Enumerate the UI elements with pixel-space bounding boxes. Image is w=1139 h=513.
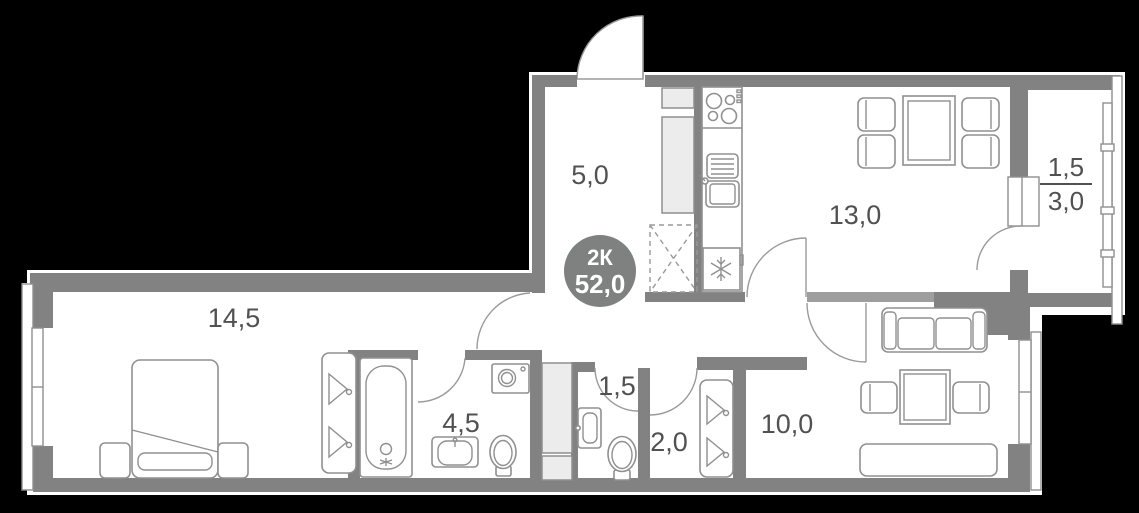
bathtub-icon	[360, 358, 412, 477]
bed-icon	[132, 360, 218, 478]
kitchen-living-area-label: 13,0	[829, 200, 882, 230]
washing-machine-icon	[492, 364, 529, 393]
vanity-sink-icon	[432, 437, 478, 467]
room-table-icon	[900, 370, 950, 424]
floor-plan: 5,0 13,0 14,5 4,5 1,5 2,0 10,0 1,5 3,0 2…	[0, 0, 1139, 513]
bathroom-area-label: 4,5	[442, 408, 480, 438]
bedroom-wardrobe-icon	[322, 353, 356, 473]
floor-plan-canvas: 5,0 13,0 14,5 4,5 1,5 2,0 10,0 1,5 3,0 2…	[0, 0, 1139, 513]
second-room-area-label: 10,0	[761, 409, 814, 439]
dining-table-icon	[903, 96, 955, 165]
badge-area-label: 52,0	[575, 269, 626, 299]
closet-area-label: 2,0	[650, 427, 688, 457]
closet-wardrobe-icon	[700, 380, 733, 477]
balcony-window	[1101, 76, 1122, 324]
hallway-area-label: 5,0	[571, 160, 609, 190]
balcony-area-lower: 3,0	[1048, 186, 1084, 216]
wc-sink-icon	[576, 408, 601, 448]
desk-icon	[860, 444, 997, 476]
balcony-area-upper: 1,5	[1048, 152, 1084, 182]
apartment-badge: 2К 52,0	[564, 235, 636, 307]
fridge-icon	[703, 248, 743, 290]
bedroom-area-label: 14,5	[208, 303, 261, 333]
wc-area-label: 1,5	[598, 371, 636, 401]
sofa-icon	[882, 308, 987, 352]
badge-rooms-label: 2К	[587, 245, 613, 270]
